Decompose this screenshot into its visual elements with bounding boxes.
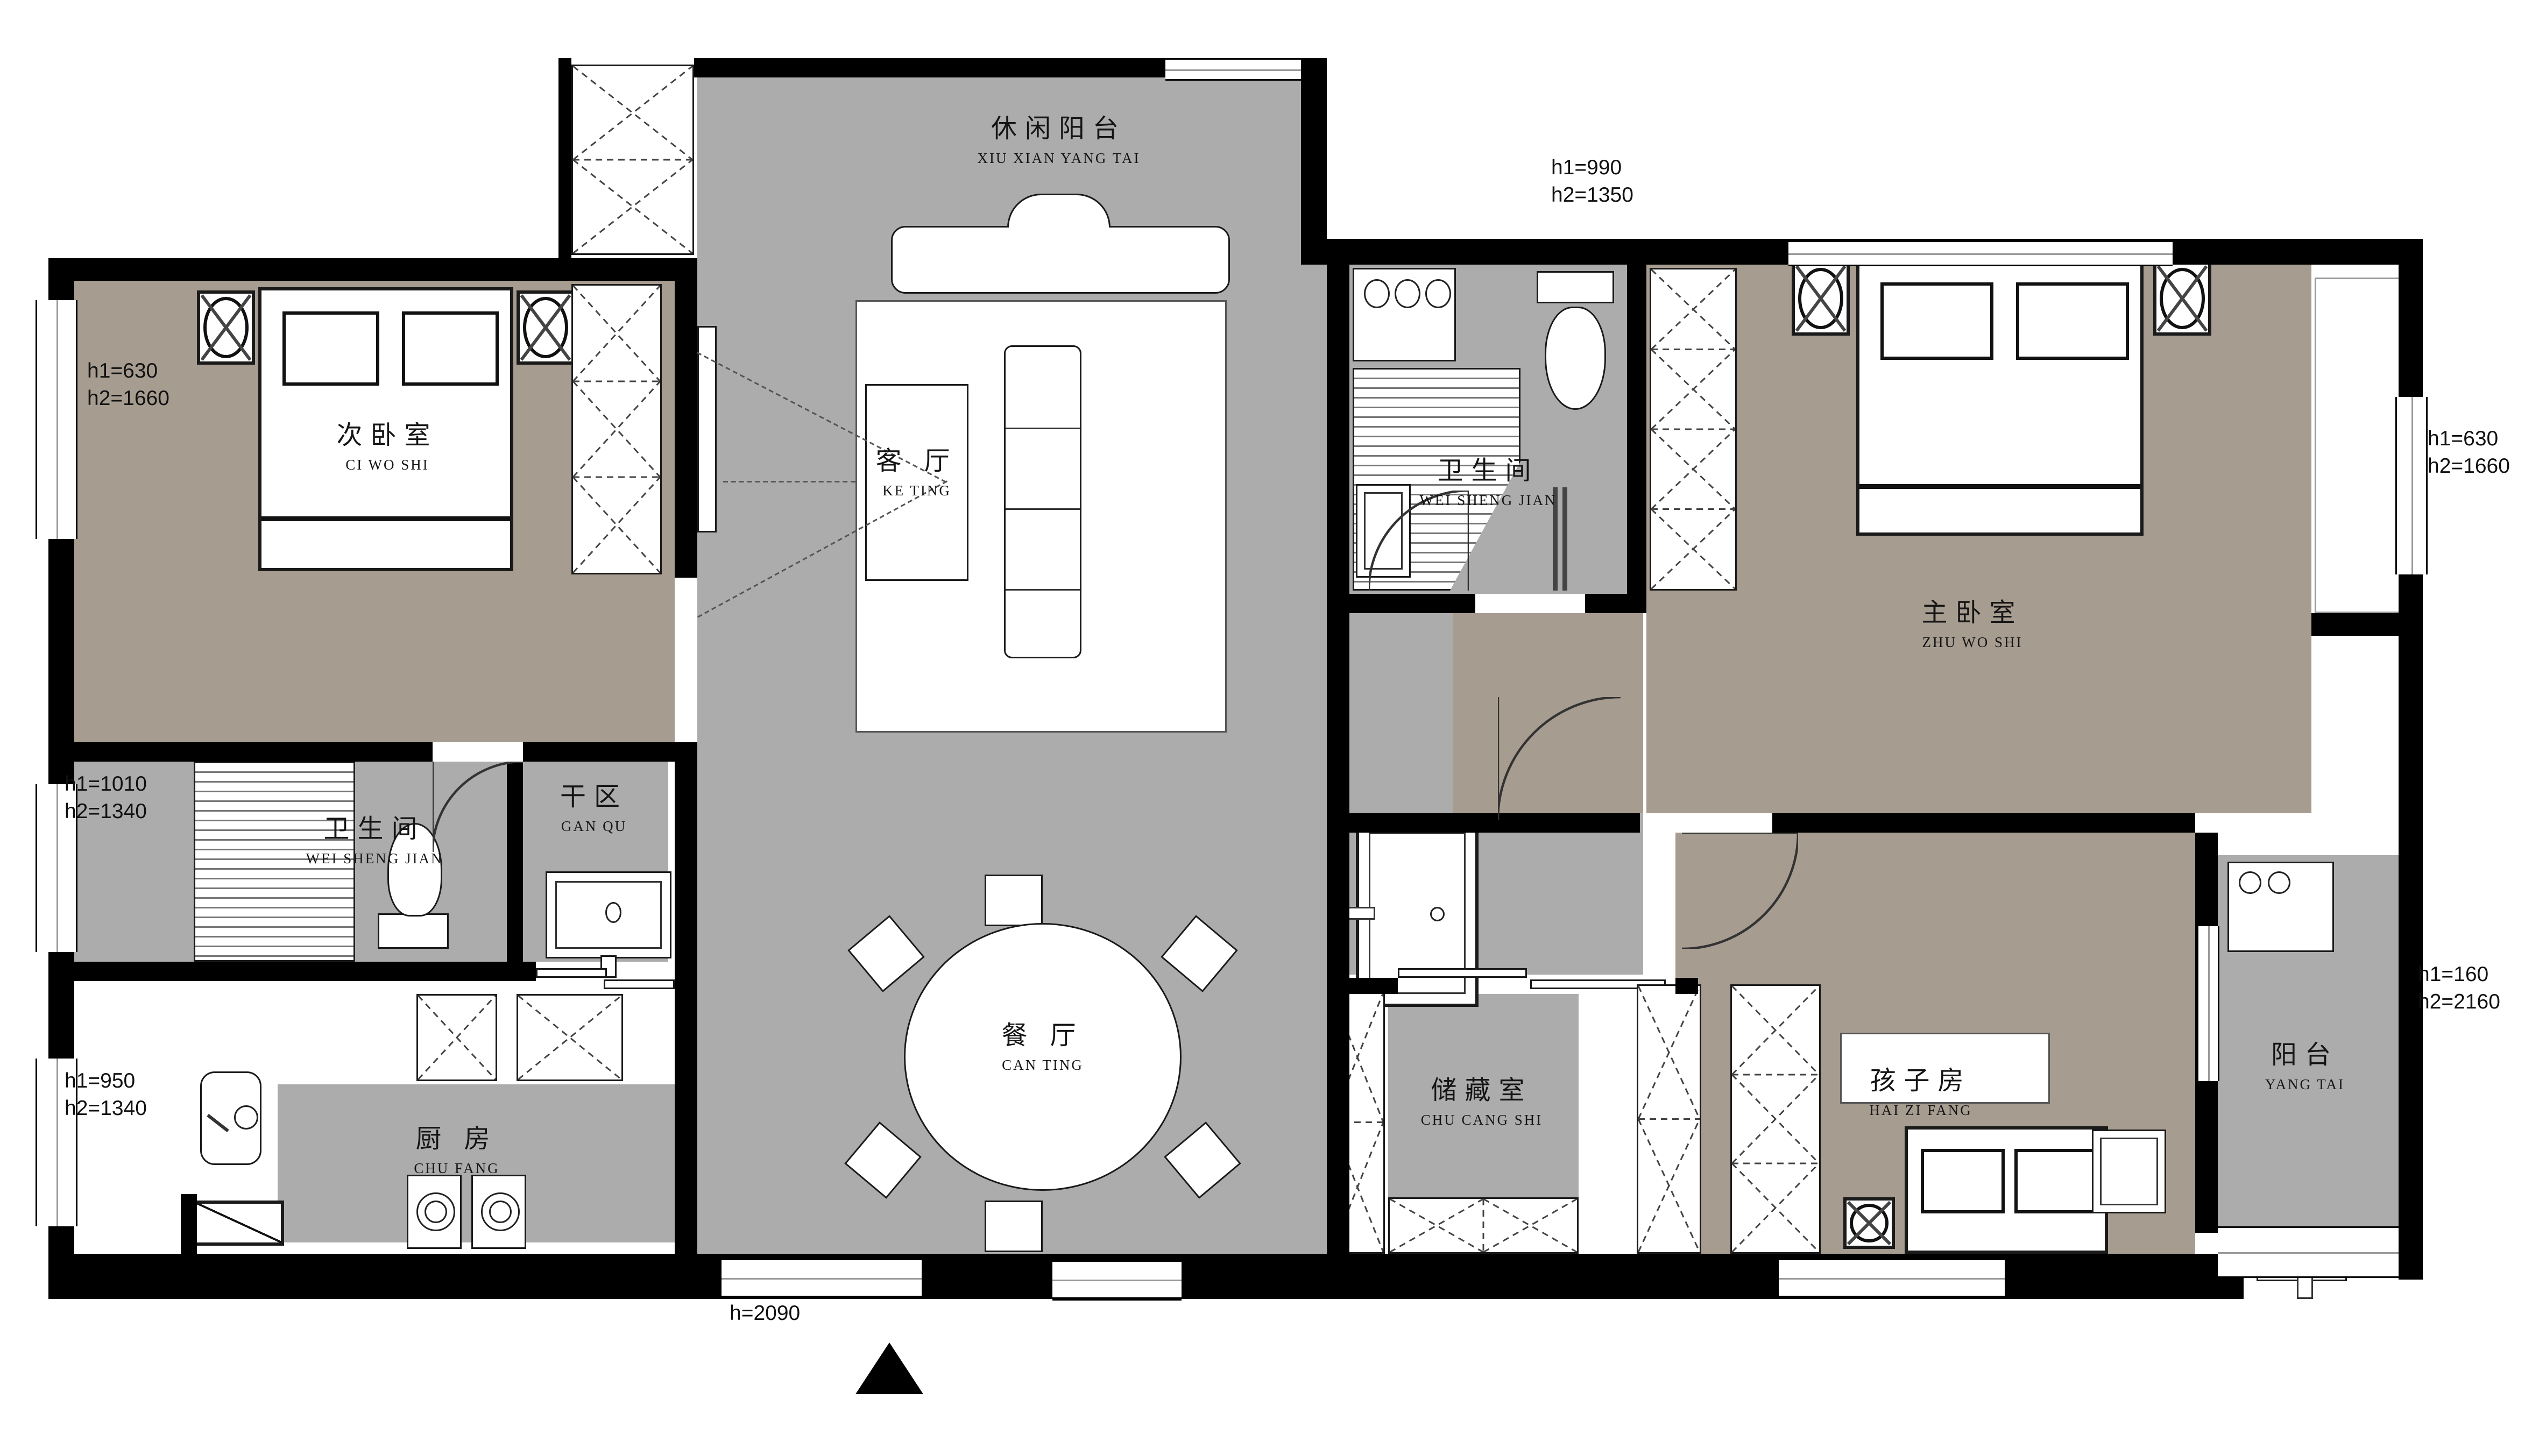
wardrobe-kids <box>1730 984 1821 1254</box>
wall <box>48 962 536 981</box>
washing-machine <box>1353 268 1456 361</box>
wardrobe-second-bedroom <box>571 284 662 574</box>
window <box>36 300 77 539</box>
measurement-left-bottom: h1=950 h2=1340 <box>65 1068 147 1123</box>
room-label-dry-area: 干区GAN QU <box>560 775 628 834</box>
nightstand-lamp-icon <box>1792 261 1850 336</box>
north-arrow-icon <box>855 1343 923 1394</box>
measurement-left-mid: h1=1010 h2=1340 <box>65 771 147 826</box>
wall <box>675 981 697 1259</box>
window <box>2197 926 2219 1081</box>
window <box>1779 1259 2005 1297</box>
door-arc-bath-left <box>433 762 523 852</box>
kitchen-cabinet <box>416 994 497 1081</box>
balcony-bench <box>891 226 1230 294</box>
room-label-living-room: 客 厅KE TING <box>875 439 958 499</box>
toilet-bowl <box>1545 307 1606 410</box>
wall <box>1675 978 1698 994</box>
sliding-door-kitchen <box>604 979 675 989</box>
measurement-right-bottom: h1=160 h2=2160 <box>2418 962 2500 1016</box>
door-arc-kids <box>1682 833 1798 949</box>
dry-area-sink <box>546 871 671 958</box>
bed-master <box>1856 258 2144 536</box>
wall <box>1327 978 1398 994</box>
window-balcony-bottom <box>2218 1226 2399 1278</box>
stove-burner <box>407 1175 462 1249</box>
sliding-door-storage <box>1398 968 1527 978</box>
toilet-tank <box>1537 271 1614 303</box>
room-label-bathroom-left: 卫生间WEI SHENG JIAN <box>306 807 443 867</box>
room-label-storage: 储藏室CHU CANG SHI <box>1421 1068 1543 1128</box>
wall <box>1327 239 1349 613</box>
wall <box>675 742 697 981</box>
shower-glass <box>1562 487 1567 591</box>
nightstand-lamp-icon <box>197 290 255 365</box>
wall <box>694 58 1165 77</box>
kids-desk <box>2092 1130 2166 1213</box>
wall <box>1327 613 1349 988</box>
storage-cabinet-bottom <box>1388 1197 1579 1254</box>
room-label-dining-room: 餐 厅CAN TING <box>1001 1013 1084 1073</box>
room-label-balcony: 阳台YANG TAI <box>2265 1033 2345 1092</box>
room-label-kids-room: 孩子房HAI ZI FANG <box>1869 1059 1972 1118</box>
window <box>722 1259 922 1297</box>
wall <box>1772 813 2195 833</box>
washing-machine-balcony <box>2227 862 2334 952</box>
wall <box>2311 613 2423 636</box>
wardrobe-master <box>1650 268 1737 591</box>
measurement-top-right: h1=990 h2=1350 <box>1551 155 1633 209</box>
wall <box>1585 594 1627 613</box>
nightstand-lamp-icon <box>517 290 575 365</box>
wall <box>675 258 697 578</box>
kitchen-sink <box>200 1071 261 1165</box>
wall <box>523 742 697 762</box>
wall <box>1627 258 1646 613</box>
wall <box>558 58 571 261</box>
measurement-right-top: h1=630 h2=1660 <box>2428 426 2510 480</box>
balcony-cabinet <box>571 65 694 255</box>
dishwasher-door <box>194 1201 284 1246</box>
wall <box>1349 594 1475 613</box>
kitchen-cabinet <box>517 994 623 1081</box>
nightstand-lamp-icon <box>1843 1197 1895 1249</box>
wall <box>48 742 433 762</box>
wall <box>48 258 697 281</box>
wall <box>181 1194 197 1254</box>
window <box>1165 58 1301 81</box>
balcony-chair <box>1007 194 1111 228</box>
room-label-bathroom-master: 卫生间WEI SHENG JIAN <box>1420 449 1557 508</box>
entry-door-threshold <box>1052 1259 1182 1301</box>
measurement-bottom-door: h=2090 <box>730 1301 800 1328</box>
bay-window-master <box>2315 278 2402 613</box>
room-label-kitchen: 厨 房CHU FANG <box>414 1117 499 1176</box>
wall <box>1301 58 1327 261</box>
sliding-door-kitchen <box>536 968 607 978</box>
bed-kids <box>1905 1126 2108 1254</box>
dining-chair <box>985 875 1043 926</box>
window <box>1788 240 2173 266</box>
sofa <box>1004 345 1081 658</box>
door-arc-master <box>1498 697 1621 820</box>
measurement-left-top: h1=630 h2=1660 <box>87 358 169 413</box>
window <box>2395 397 2428 574</box>
wall <box>1327 994 1349 1254</box>
toilet <box>378 913 449 949</box>
floor-plan: 休闲阳台XIU XIAN YANG TAI 次卧室CI WO SHI 客 厅KE… <box>0 0 2532 1456</box>
dining-chair <box>985 1201 1043 1252</box>
room-label-second-bedroom: 次卧室CI WO SHI <box>336 413 438 473</box>
stove-burner <box>471 1175 526 1249</box>
nightstand-lamp-icon <box>2153 261 2211 336</box>
storage-cabinet-right <box>1637 984 1701 1254</box>
door-swing-dash <box>723 481 855 482</box>
room-label-leisure-balcony: 休闲阳台XIU XIAN YANG TAI <box>977 106 1140 166</box>
wall <box>2399 239 2423 1280</box>
room-label-master-bedroom: 主卧室ZHU WO SHI <box>1921 591 2023 650</box>
